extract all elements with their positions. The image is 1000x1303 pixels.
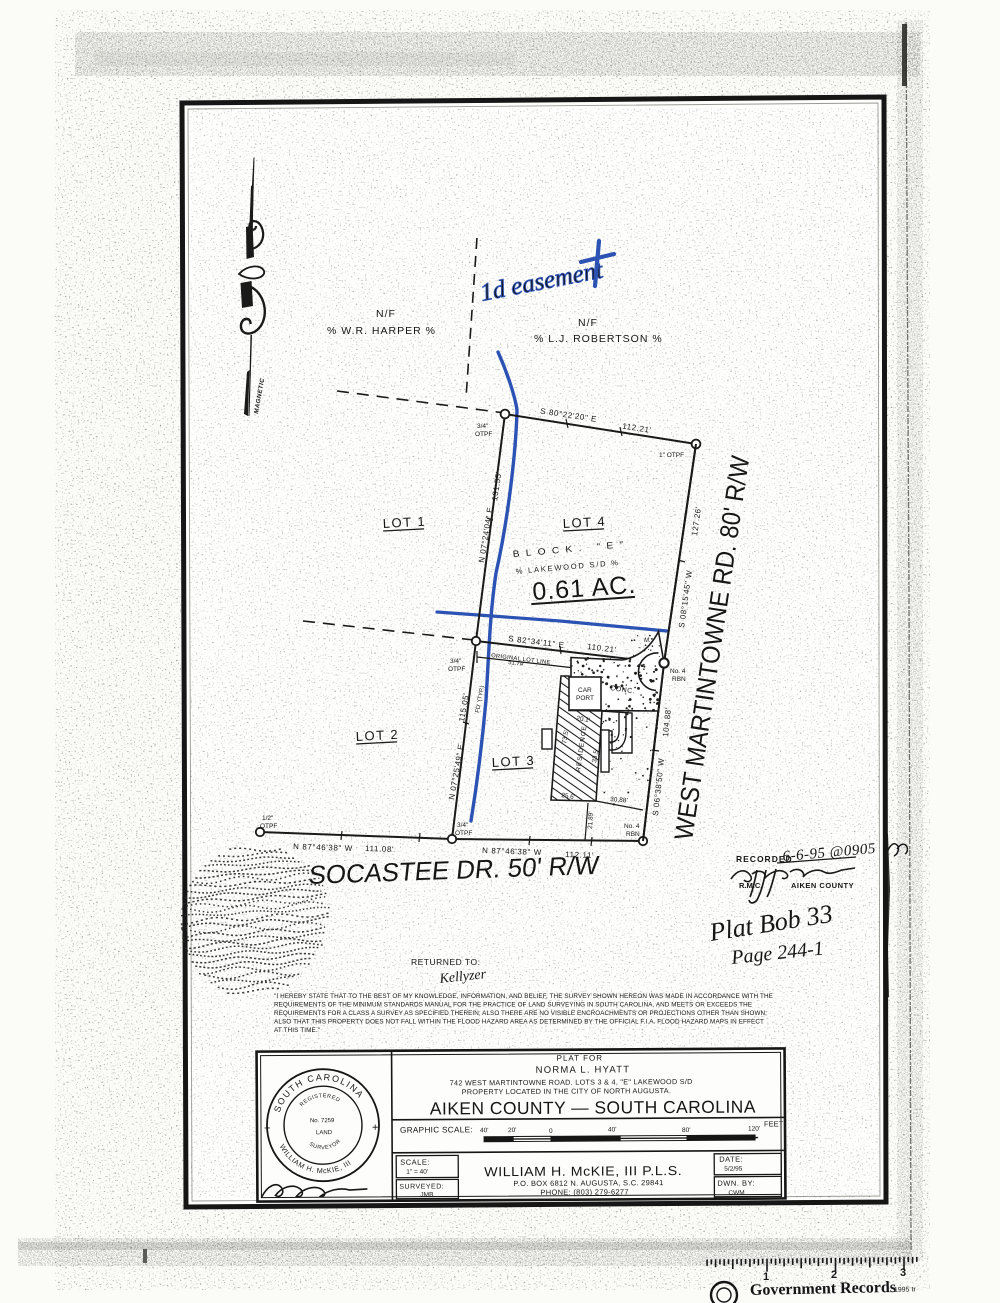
svg-text:REQUIREMENTS OF THE MINIMUM ST: REQUIREMENTS OF THE MINIMUM STANDARDS MA…	[274, 1002, 752, 1009]
svg-text:GRAPHIC SCALE:: GRAPHIC SCALE:	[400, 1125, 473, 1134]
svg-text:FEET: FEET	[764, 1119, 784, 1128]
svg-text:M.: M.	[644, 638, 651, 644]
svg-text:PROPERTY LOCATED IN THE CITY O: PROPERTY LOCATED IN THE CITY OF NORTH AU…	[462, 1086, 671, 1096]
svg-text:OTPF: OTPF	[475, 431, 492, 438]
svg-text:2: 2	[831, 1269, 837, 1281]
svg-text:3/4": 3/4"	[450, 658, 462, 665]
svg-text:JMB: JMB	[420, 1192, 433, 1199]
svg-text:+: +	[372, 1122, 379, 1134]
svg-text:+: +	[264, 1123, 271, 1135]
svg-text:40': 40'	[608, 1126, 617, 1133]
svg-text:20': 20'	[508, 1127, 517, 1134]
svg-text:RETURNED TO:: RETURNED TO:	[411, 957, 480, 967]
svg-text:3/4": 3/4"	[477, 423, 489, 430]
svg-text:LAND: LAND	[316, 1130, 333, 1136]
svg-text:Government Records: Government Records	[750, 1279, 897, 1299]
svg-text:LOT 3: LOT 3	[491, 753, 535, 770]
svg-text:SCALE:: SCALE:	[400, 1158, 430, 1167]
svg-text:PORT: PORT	[576, 695, 594, 702]
svg-text:PLAT FOR: PLAT FOR	[557, 1053, 603, 1062]
svg-text:AIKEN COUNTY — SOUTH CAROL: AIKEN COUNTY — SOUTH CAROLINA	[430, 1097, 756, 1119]
svg-text:CAR: CAR	[578, 687, 592, 694]
svg-text:111.08': 111.08'	[365, 844, 394, 854]
svg-text:% L.J. ROBERTSON %: % L.J. ROBERTSON %	[534, 333, 663, 345]
svg-text:REQUIREMENTS FOR A CLASS A S: REQUIREMENTS FOR A CLASS A SURVEY AS SPE…	[274, 1010, 767, 1017]
svg-text:1" OTPF: 1" OTPF	[659, 452, 684, 459]
svg-text:% W.R. HARPER %: % W.R. HARPER %	[327, 325, 436, 337]
svg-text:N/F: N/F	[376, 308, 396, 320]
svg-text:RBN: RBN	[626, 831, 640, 838]
svg-text:"I HEREBY STATE THAT TO THE BE: "I HEREBY STATE THAT TO THE BEST OF MY K…	[274, 993, 773, 1000]
svg-text:OTPF: OTPF	[448, 666, 465, 673]
svg-text:No. 7259: No. 7259	[310, 1118, 335, 1124]
svg-text:80': 80'	[682, 1127, 691, 1134]
svg-text:NORMA L. HYATT: NORMA L. HYATT	[536, 1064, 631, 1076]
svg-text:OTPF: OTPF	[455, 830, 472, 837]
svg-text:LOT 2: LOT 2	[355, 727, 399, 744]
svg-text:SURVEYED:: SURVEYED:	[399, 1183, 444, 1190]
svg-text:CWM: CWM	[728, 1190, 744, 1197]
svg-text:1995 tr: 1995 tr	[894, 1286, 917, 1294]
svg-text:WILLIAM H. McKIE, III P.L.: WILLIAM H. McKIE, III P.L.S.	[484, 1163, 682, 1179]
svg-text:RBN: RBN	[672, 676, 686, 683]
svg-text:AIKEN COUNTY: AIKEN COUNTY	[791, 881, 854, 890]
svg-text:5/2/95: 5/2/95	[724, 1166, 742, 1173]
svg-text:1" = 40': 1" = 40'	[406, 1169, 428, 1176]
svg-text:DATE:: DATE:	[719, 1155, 743, 1164]
svg-text:21.89': 21.89'	[587, 811, 595, 829]
svg-text:OTPF: OTPF	[260, 823, 277, 830]
svg-text:40': 40'	[480, 1127, 489, 1134]
svg-text:P.O. BOX 6812 N. AUGUSTA, S.C.: P.O. BOX 6812 N. AUGUSTA, S.C. 29841	[513, 1178, 663, 1188]
svg-text:LOT 1: LOT 1	[382, 514, 426, 531]
svg-text:ALSO THAT THIS PROPERTY DOES N: ALSO THAT THIS PROPERTY DOES NOT FALL WI…	[274, 1019, 764, 1026]
svg-text:120': 120'	[748, 1126, 760, 1133]
svg-text:LOT 4: LOT 4	[562, 514, 606, 531]
svg-text:AT THIS TIME.": AT THIS TIME."	[274, 1027, 320, 1034]
svg-text:0: 0	[549, 1128, 553, 1135]
svg-text:3/4": 3/4"	[457, 822, 469, 829]
svg-text:PHONE: (803) 279-6277: PHONE: (803) 279-6277	[540, 1187, 628, 1197]
svg-text:No. 4: No. 4	[670, 668, 686, 675]
svg-text:DWN. BY:: DWN. BY:	[717, 1179, 755, 1188]
svg-text:3: 3	[900, 1267, 906, 1279]
svg-text:N/F: N/F	[578, 317, 598, 329]
svg-text:No. 4: No. 4	[624, 823, 640, 830]
svg-text:1/2": 1/2"	[262, 815, 274, 822]
svg-text:R.M.C.: R.M.C.	[739, 881, 762, 890]
